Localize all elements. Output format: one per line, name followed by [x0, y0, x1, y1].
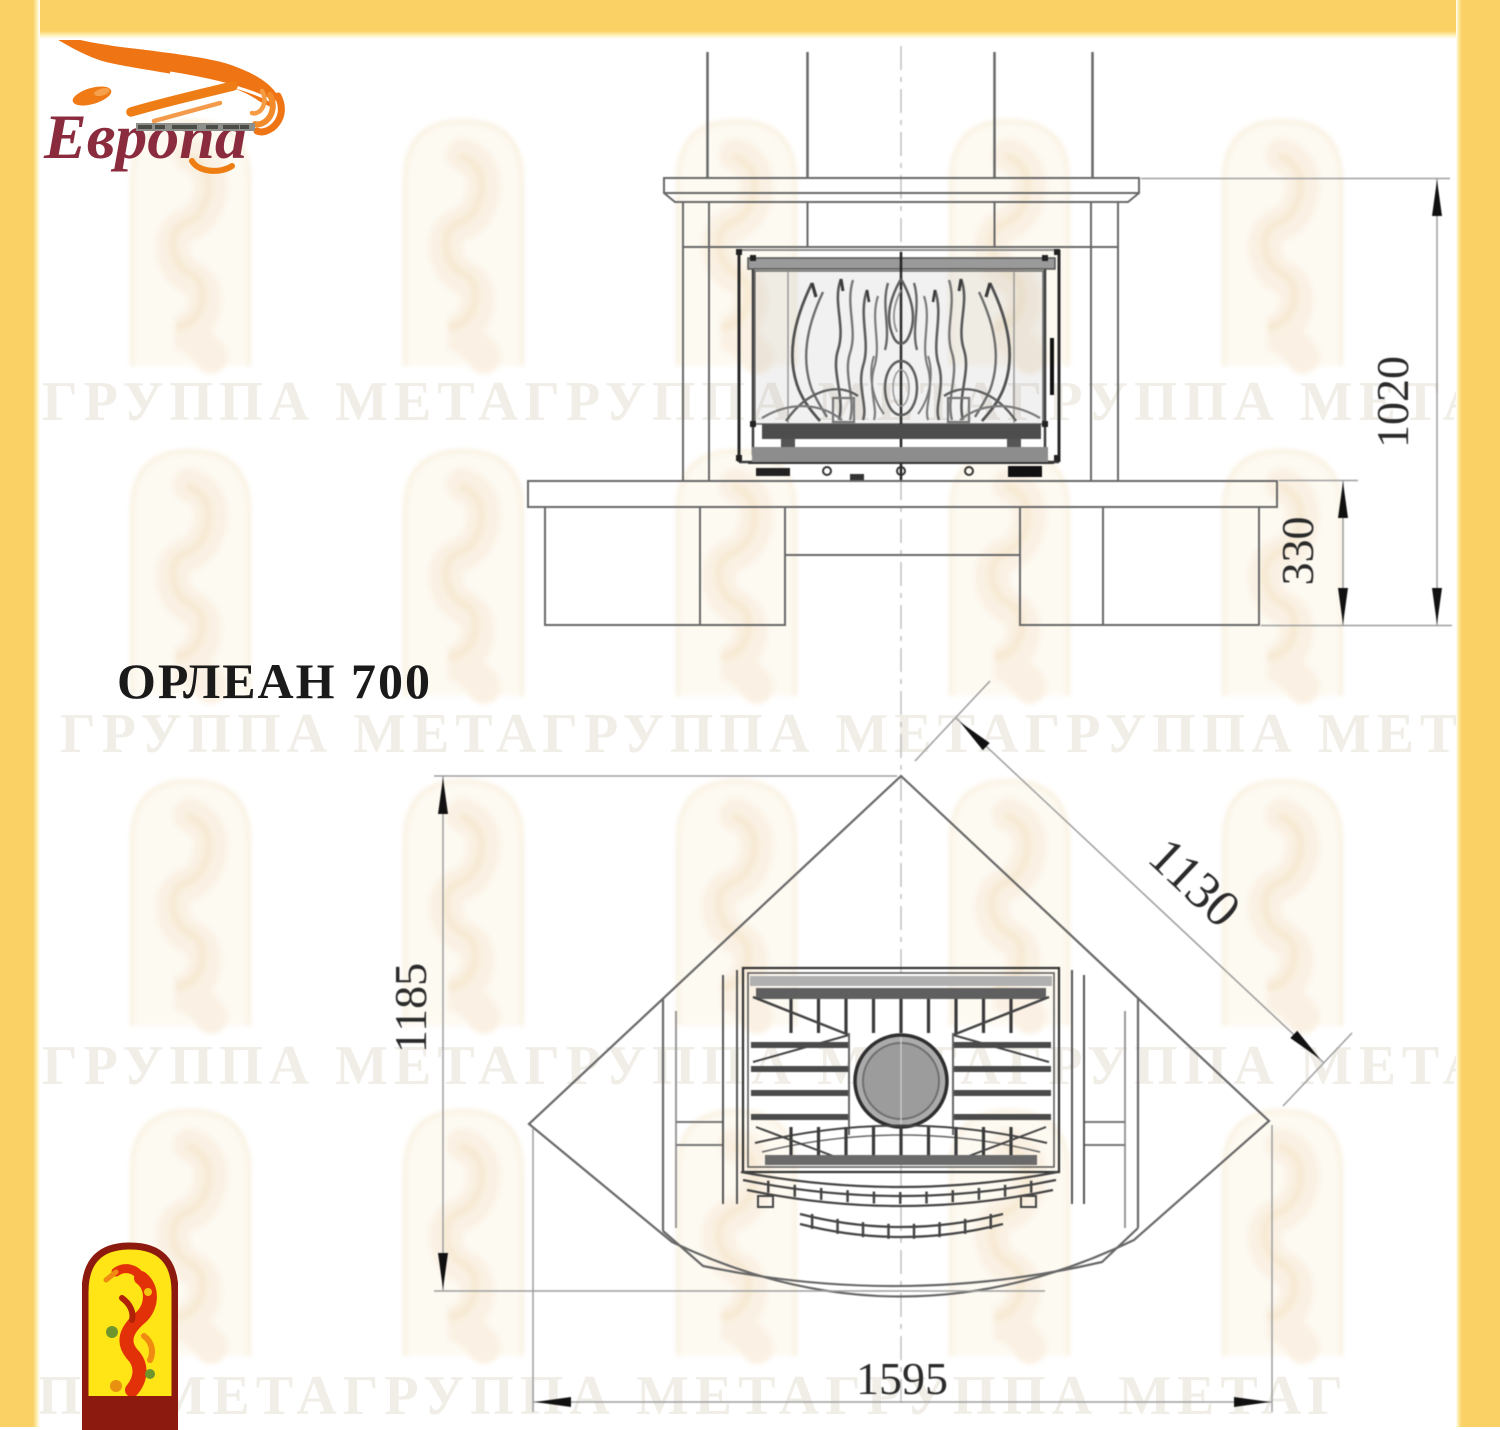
svg-text:330: 330 [1272, 517, 1323, 586]
svg-text:1130: 1130 [1138, 827, 1251, 938]
svg-text:Европа: Европа [43, 101, 247, 172]
svg-text:1185: 1185 [385, 963, 436, 1053]
svg-text:1020: 1020 [1367, 356, 1418, 448]
svg-text:1595: 1595 [856, 1353, 948, 1404]
